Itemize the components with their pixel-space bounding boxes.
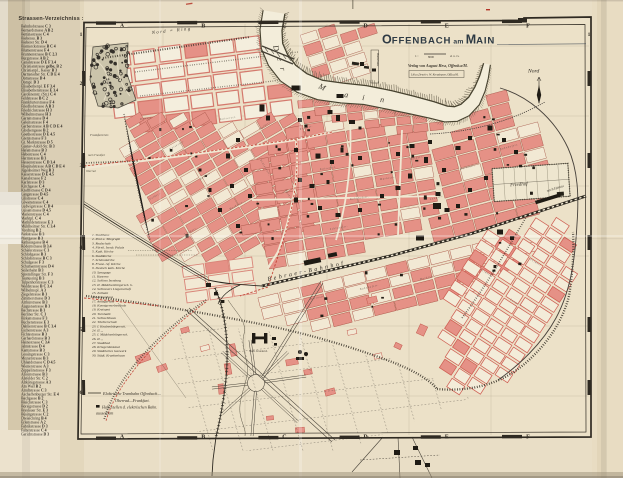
svg-text:n: n [380,95,385,104]
svg-text:30. Städt. Krankenhaus: 30. Städt. Krankenhaus [92,353,125,357]
svg-text:4: 4 [588,245,591,251]
svg-text:4: 4 [80,245,83,251]
svg-text:2: 2 [588,81,591,87]
svg-text:C: C [282,24,286,30]
svg-text:3: 3 [588,163,591,169]
svg-text:Lith.u.Druck v. W. Kreuzbauer,: Lith.u.Druck v. W. Kreuzbauer, Offb.a/M. [410,73,459,77]
svg-text:1 :: 1 : [415,54,419,58]
svg-text:Oberrad: Oberrad [86,170,96,173]
svg-text:nach Frankfurt: nach Frankfurt [88,154,105,157]
svg-text:A: A [120,435,125,441]
svg-text:Bootshaus: Bootshaus [376,53,380,67]
svg-text:d. n. G.: d. n. G. [450,54,460,58]
svg-text:E: E [445,24,449,30]
svg-text:C: C [282,435,286,441]
svg-text:Nord: Nord [527,69,539,75]
svg-text:3: 3 [80,163,83,169]
svg-text:2: 2 [80,81,83,87]
svg-text:B: B [201,435,205,441]
svg-text:5: 5 [80,327,83,333]
svg-text:B: B [201,24,205,30]
svg-text:OFFENBACH am MAIN: OFFENBACH am MAIN [382,33,495,47]
svg-text:E: E [445,435,449,441]
svg-text:A: A [120,24,125,30]
svg-text:Stadt. Krankenh.: Stadt. Krankenh. [249,350,268,353]
svg-text:D: D [363,435,368,441]
svg-text:D: D [363,24,368,30]
svg-text:ausserdem: ausserdem [96,411,113,416]
svg-text:5: 5 [588,327,591,333]
svg-text:F: F [526,435,530,441]
svg-text:Frankfurterstr.: Frankfurterstr. [89,133,109,137]
svg-text:6: 6 [588,390,591,396]
svg-text:8000: 8000 [428,55,435,59]
svg-text:Verlag von August Hess, Offenb: Verlag von August Hess, Offenb.a/M. [408,64,468,68]
svg-text:Elektrische Trambahn Offenbach: Elektrische Trambahn Offenbach— [102,391,161,396]
svg-text:F: F [526,24,530,30]
svg-text:1: 1 [588,32,591,38]
svg-text:6: 6 [80,390,83,396]
svg-text:Haltestellen d. elektrischen B: Haltestellen d. elektrischen Bahn. [101,405,157,410]
svg-text:1: 1 [80,32,83,38]
svg-text:Oberrad—Frankfurt.: Oberrad—Frankfurt. [115,398,150,403]
